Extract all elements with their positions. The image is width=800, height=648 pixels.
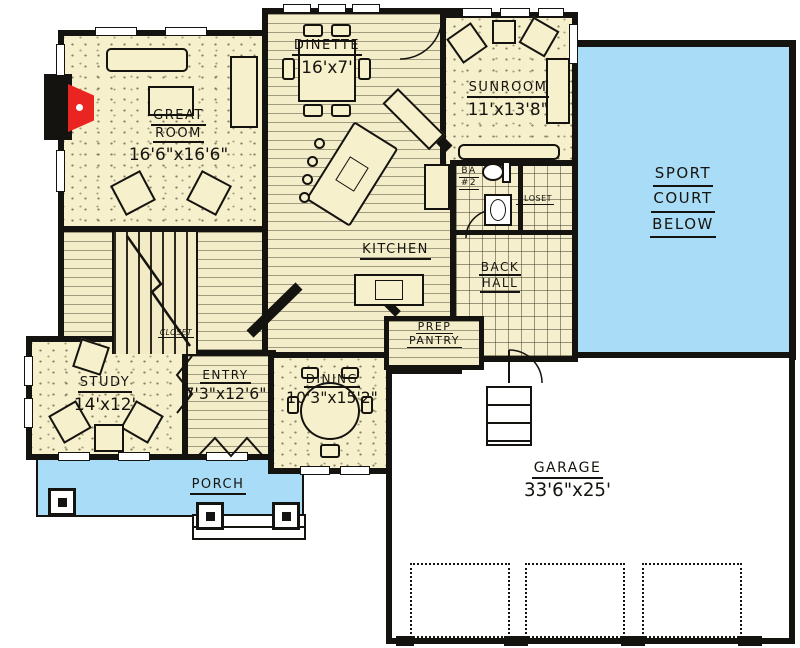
bath2-name-line1: BA [459, 166, 478, 178]
window [352, 4, 380, 13]
toilet-tank [502, 161, 511, 183]
chair-icon [303, 24, 323, 37]
porch-column-icon [272, 502, 300, 530]
back-steps [486, 386, 532, 446]
great-room-name-line2: ROOM [153, 126, 204, 144]
porch-column-icon [196, 502, 224, 530]
window [24, 398, 33, 428]
window [165, 27, 207, 36]
stool-icon [299, 192, 310, 203]
prep-pantry-label: PREP PANTRY [392, 320, 477, 348]
garage-jamb [621, 636, 645, 646]
closet-label: CLOSET [505, 194, 565, 205]
sport-court-name-line1: SPORT [653, 162, 713, 187]
garage-door-bay [642, 563, 742, 638]
kitchen-label: KITCHEN [333, 242, 458, 260]
wall-bath-backhall [454, 230, 574, 235]
window [462, 8, 492, 17]
back-hall-name-line1: BACK [479, 260, 521, 276]
porch-label: PORCH [168, 477, 268, 495]
entry-label: ENTRY 7'3"x12'6" [178, 368, 273, 404]
chair-icon [331, 24, 351, 37]
range-icon [335, 156, 368, 191]
prep-pantry-name-line1: PREP [416, 320, 454, 334]
chair-icon [303, 104, 323, 117]
sunroom-label: SUNROOM 11'x13'8" [448, 80, 568, 119]
window [300, 466, 330, 475]
entry-name: ENTRY [200, 368, 250, 384]
dining-dims: 10'3"x15'2" [272, 389, 392, 408]
side-table-icon [94, 424, 124, 452]
garage-label: GARAGE 33'6"x25' [495, 460, 640, 502]
stool-icon [314, 138, 325, 149]
garage-door-bay [525, 563, 625, 638]
back-hall-label: BACK HALL [455, 260, 545, 293]
window [24, 356, 33, 386]
chair-icon [320, 444, 340, 458]
sport-court-name-line2: COURT [651, 187, 714, 212]
sofa-icon [106, 48, 188, 72]
fireplace-dot [76, 104, 83, 111]
study-name: STUDY [78, 375, 132, 393]
dining-label: DINING 10'3"x15'2" [272, 372, 392, 408]
sport-court-name-line3: BELOW [650, 213, 716, 238]
sunroom-name: SUNROOM [467, 80, 550, 98]
closet-name: CLOSET [516, 194, 554, 205]
window [118, 452, 150, 461]
window [538, 8, 564, 17]
kitchen-name: KITCHEN [360, 242, 431, 260]
dining-name: DINING [304, 372, 361, 388]
cooktop-icon [375, 280, 403, 300]
great-room-label: GREAT ROOM 16'6"x16'6" [116, 108, 241, 164]
prep-pantry-name-line2: PANTRY [407, 334, 462, 348]
chair-icon [331, 104, 351, 117]
garage-jamb [396, 636, 414, 646]
great-room-dims: 16'6"x16'6" [116, 144, 241, 164]
bath2-label: BA #2 [452, 166, 486, 190]
window [500, 8, 530, 17]
column-core [206, 512, 215, 521]
dinette-dims: 16'x7' [272, 57, 382, 77]
window [58, 452, 90, 461]
great-room-name-line1: GREAT [151, 108, 206, 126]
garage-name: GARAGE [532, 460, 604, 479]
floor-plan: SPORT COURT BELOW [0, 0, 800, 648]
garage-door-bay [410, 563, 510, 638]
porch-name: PORCH [190, 477, 247, 495]
room-entry [182, 350, 276, 460]
window [340, 466, 370, 475]
bath2-name-line2: #2 [459, 178, 479, 190]
counter-icon [354, 274, 424, 306]
sunroom-dims: 11'x13'8" [448, 99, 568, 119]
dinette-label: DINETTE 16'x7' [272, 38, 382, 77]
stool-icon [307, 156, 318, 167]
fireplace-housing [44, 74, 72, 140]
study-dims: 14'x12' [55, 394, 155, 414]
side-table-icon [492, 20, 516, 44]
dinette-name: DINETTE [292, 38, 362, 56]
entry-closet-label: CLOSET [152, 328, 200, 338]
column-core [282, 512, 291, 521]
stool-icon [302, 174, 313, 185]
door-opening [206, 452, 248, 461]
entry-closet-name: CLOSET [158, 328, 194, 338]
garage-jamb [738, 636, 762, 646]
window [318, 4, 346, 13]
garage-dims: 33'6"x25' [495, 480, 640, 502]
back-hall-name-line2: HALL [480, 276, 521, 292]
appliance-icon [424, 164, 450, 210]
window [95, 27, 137, 36]
bench-icon [458, 144, 560, 160]
entry-dims: 7'3"x12'6" [178, 385, 273, 404]
porch-column-icon [48, 488, 76, 516]
window [56, 44, 65, 76]
room-sport-court: SPORT COURT BELOW [570, 40, 796, 360]
window [283, 4, 311, 13]
garage-jamb [504, 636, 528, 646]
window [569, 24, 578, 64]
study-label: STUDY 14'x12' [55, 375, 155, 414]
sport-court-label: SPORT COURT BELOW [650, 162, 716, 238]
window [56, 150, 65, 192]
column-core [58, 498, 67, 507]
sink-icon [490, 199, 506, 221]
